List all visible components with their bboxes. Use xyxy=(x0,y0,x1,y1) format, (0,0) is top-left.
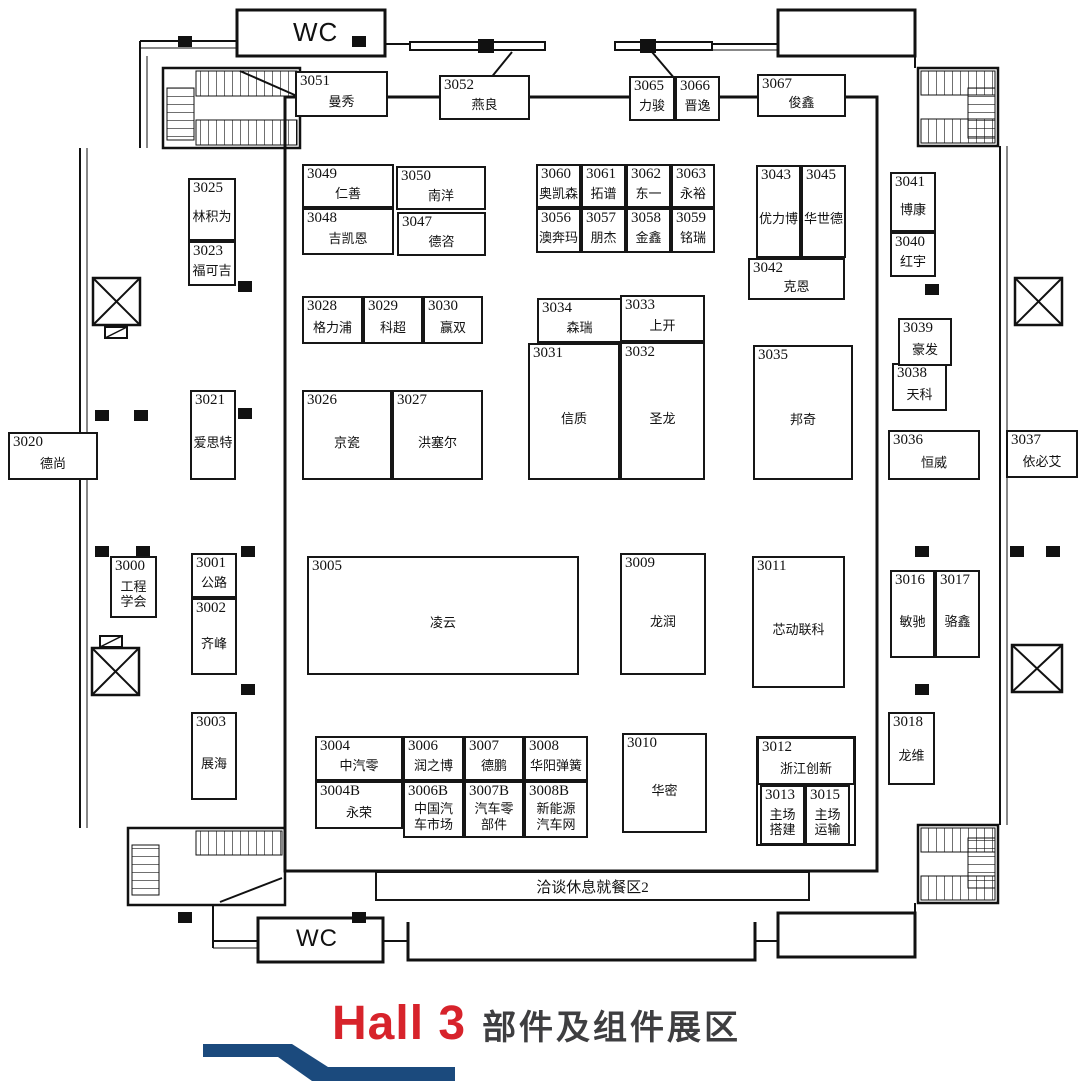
booth-number: 3037 xyxy=(1008,432,1076,449)
booth-number: 3006 xyxy=(405,738,462,755)
booth-exhibitor-name: 金鑫 xyxy=(628,227,669,251)
booth-3042: 3042克恩 xyxy=(748,258,845,300)
booth-exhibitor-name: 永荣 xyxy=(317,800,401,827)
booth-exhibitor-name: 朋杰 xyxy=(583,227,624,251)
booth-3066: 3066晋逸 xyxy=(675,76,720,121)
booth-3060: 3060奥凯森 xyxy=(536,164,581,208)
booth-exhibitor-name: 东一 xyxy=(628,183,669,206)
booth-exhibitor-name: 汽车零 部件 xyxy=(466,800,522,836)
booth-exhibitor-name: 展海 xyxy=(193,731,235,798)
booth-3017: 3017骆鑫 xyxy=(935,570,980,658)
booth-3005: 3005凌云 xyxy=(307,556,579,675)
booth-exhibitor-name: 克恩 xyxy=(750,277,843,298)
booth-number: 3038 xyxy=(894,365,945,382)
booth-exhibitor-name: 骆鑫 xyxy=(937,589,978,656)
booth-3000: 3000工程 学会 xyxy=(110,556,157,618)
booth-3035: 3035邦奇 xyxy=(753,345,853,480)
wc-label-bottom: WC xyxy=(296,925,338,953)
booth-exhibitor-name: 洪塞尔 xyxy=(394,409,481,478)
booth-number: 3034 xyxy=(539,300,620,317)
booth-3031: 3031信质 xyxy=(528,343,620,480)
booth-number: 3033 xyxy=(622,297,703,314)
booth-exhibitor-name: 赢双 xyxy=(425,315,481,342)
booth-exhibitor-name: 德鹏 xyxy=(466,755,522,779)
booth-3008B: 3008B新能源 汽车网 xyxy=(524,781,588,838)
booth-3006B: 3006B中国汽 车市场 xyxy=(403,781,464,838)
booth-number: 3058 xyxy=(628,210,669,227)
booth-number: 3008 xyxy=(526,738,586,755)
booth-number: 3010 xyxy=(624,735,705,752)
booth-3052: 3052燕良 xyxy=(439,75,530,120)
booth-number: 3063 xyxy=(673,166,713,183)
booth-exhibitor-name: 公路 xyxy=(193,572,235,596)
booth-3001: 3001公路 xyxy=(191,553,237,598)
booth-3023: 3023福可吉 xyxy=(188,241,236,286)
booth-exhibitor-name: 森瑞 xyxy=(539,317,620,341)
booth-3040: 3040红宇 xyxy=(890,232,936,277)
booth-exhibitor-name: 福可吉 xyxy=(190,260,234,284)
booth-exhibitor-name: 俊鑫 xyxy=(759,93,844,115)
hall-title: Hall 3 部件及组件展区 xyxy=(332,996,741,1051)
booth-exhibitor-name: 龙润 xyxy=(622,572,704,673)
booth-number: 3067 xyxy=(759,76,844,93)
booth-3018: 3018龙维 xyxy=(888,712,935,785)
booth-number: 3017 xyxy=(937,572,978,589)
booth-exhibitor-name: 齐峰 xyxy=(193,617,235,673)
booth-3056: 3056澳奔玛 xyxy=(536,208,581,253)
booth-number: 3043 xyxy=(758,167,799,184)
booth-number: 3045 xyxy=(803,167,844,184)
booth-exhibitor-name: 科超 xyxy=(365,315,421,342)
booth-exhibitor-name: 铭瑞 xyxy=(673,227,713,251)
booth-exhibitor-name: 仁善 xyxy=(304,183,392,206)
booth-number: 3015 xyxy=(807,787,848,804)
booth-exhibitor-name: 奥凯森 xyxy=(538,183,579,206)
hall-title-zh: 部件及组件展区 xyxy=(482,1000,741,1049)
booth-number: 3008B xyxy=(526,783,586,800)
booth-number: 3059 xyxy=(673,210,713,227)
booth-exhibitor-name: 邦奇 xyxy=(755,364,851,478)
booth-number: 3004 xyxy=(317,738,401,755)
booth-number: 3004B xyxy=(317,783,401,800)
booth-3007B: 3007B汽车零 部件 xyxy=(464,781,524,838)
booth-exhibitor-name: 澳奔玛 xyxy=(538,227,579,251)
booth-exhibitor-name: 华密 xyxy=(624,752,705,831)
hall-title-en: Hall 3 xyxy=(332,996,466,1051)
booth-exhibitor-name: 永裕 xyxy=(673,183,713,206)
booth-exhibitor-name: 主场 搭建 xyxy=(762,804,803,843)
booth-number: 3032 xyxy=(622,344,703,361)
booth-number: 3052 xyxy=(441,77,528,94)
booth-exhibitor-name: 中国汽 车市场 xyxy=(405,800,462,836)
booth-exhibitor-name: 德咨 xyxy=(399,231,484,254)
booth-number: 3023 xyxy=(190,243,234,260)
booth-number: 3061 xyxy=(583,166,624,183)
booth-3008: 3008华阳弹簧 xyxy=(524,736,588,781)
booth-exhibitor-name: 芯动联科 xyxy=(754,575,843,686)
booth-exhibitor-name: 凌云 xyxy=(309,575,577,673)
booth-number: 3013 xyxy=(762,787,803,804)
booth-layer: 3051曼秀3052燕良3065力骏3066晋逸3067俊鑫3049仁善3050… xyxy=(0,0,1080,1089)
booth-exhibitor-name: 华阳弹簧 xyxy=(526,755,586,779)
booth-number: 3039 xyxy=(900,320,950,337)
booth-exhibitor-name: 圣龙 xyxy=(622,361,703,478)
booth-exhibitor-name: 信质 xyxy=(530,362,618,478)
booth-exhibitor-name: 天科 xyxy=(894,382,945,409)
booth-exhibitor-name: 曼秀 xyxy=(297,90,386,115)
booth-3006: 3006润之博 xyxy=(403,736,464,781)
exhibition-floorplan: 3051曼秀3052燕良3065力骏3066晋逸3067俊鑫3049仁善3050… xyxy=(0,0,1080,1089)
booth-exhibitor-name: 力骏 xyxy=(631,95,673,119)
booth-3010: 3010华密 xyxy=(622,733,707,833)
booth-3015: 3015主场 运输 xyxy=(805,785,850,845)
booth-number: 3041 xyxy=(892,174,934,191)
booth-number: 3035 xyxy=(755,347,851,364)
booth-number: 3047 xyxy=(399,214,484,231)
booth-exhibitor-name: 润之博 xyxy=(405,755,462,779)
booth-3002: 3002齐峰 xyxy=(191,598,237,675)
booth-3033: 3033上开 xyxy=(620,295,705,342)
booth-exhibitor-name: 华世德 xyxy=(803,184,844,256)
booth-exhibitor-name: 豪发 xyxy=(900,337,950,364)
booth-number: 3042 xyxy=(750,260,843,277)
booth-3063: 3063永裕 xyxy=(671,164,715,208)
booth-number: 3007B xyxy=(466,783,522,800)
wc-label-top: WC xyxy=(293,17,338,48)
booth-number: 3049 xyxy=(304,166,392,183)
booth-number: 3005 xyxy=(309,558,577,575)
booth-number: 3020 xyxy=(10,434,96,451)
booth-number: 3031 xyxy=(530,345,618,362)
booth-exhibitor-name: 博康 xyxy=(892,191,934,230)
booth-number: 3012 xyxy=(759,739,853,756)
booth-number: 3036 xyxy=(890,432,978,449)
booth-number: 3026 xyxy=(304,392,390,409)
booth-3062: 3062东一 xyxy=(626,164,671,208)
booth-3065: 3065力骏 xyxy=(629,76,675,121)
booth-3021: 3021爱思特 xyxy=(190,390,236,480)
dining-rest-area: 洽谈休息就餐区2 xyxy=(375,871,810,901)
booth-number: 3050 xyxy=(398,168,484,185)
booth-3029: 3029科超 xyxy=(363,296,423,344)
booth-number: 3056 xyxy=(538,210,579,227)
booth-3050: 3050南洋 xyxy=(396,166,486,210)
booth-3041: 3041博康 xyxy=(890,172,936,232)
booth-exhibitor-name: 敏驰 xyxy=(892,589,933,656)
booth-3051: 3051曼秀 xyxy=(295,71,388,117)
booth-number: 3066 xyxy=(677,78,718,95)
booth-exhibitor-name: 新能源 汽车网 xyxy=(526,800,586,836)
booth-3027: 3027洪塞尔 xyxy=(392,390,483,480)
booth-3016: 3016敏驰 xyxy=(890,570,935,658)
booth-3009: 3009龙润 xyxy=(620,553,706,675)
booth-3057: 3057朋杰 xyxy=(581,208,626,253)
booth-exhibitor-name: 优力博 xyxy=(758,184,799,256)
booth-exhibitor-name: 恒威 xyxy=(890,449,978,478)
booth-number: 3000 xyxy=(112,558,155,575)
booth-exhibitor-name: 中汽零 xyxy=(317,755,401,779)
booth-3020: 3020德尚 xyxy=(8,432,98,480)
booth-exhibitor-name: 爱思特 xyxy=(192,409,234,478)
booth-exhibitor-name: 晋逸 xyxy=(677,95,718,119)
booth-3061: 3061拓谱 xyxy=(581,164,626,208)
booth-3045: 3045华世德 xyxy=(801,165,846,258)
booth-number: 3051 xyxy=(297,73,386,90)
booth-3059: 3059铭瑞 xyxy=(671,208,715,253)
booth-exhibitor-name: 依必艾 xyxy=(1008,449,1076,476)
booth-3036: 3036恒威 xyxy=(888,430,980,480)
booth-3007: 3007德鹏 xyxy=(464,736,524,781)
booth-number: 3048 xyxy=(304,210,392,227)
booth-number: 3016 xyxy=(892,572,933,589)
booth-exhibitor-name: 吉凯恩 xyxy=(304,227,392,253)
booth-number: 3006B xyxy=(405,783,462,800)
booth-3067: 3067俊鑫 xyxy=(757,74,846,117)
booth-exhibitor-name: 燕良 xyxy=(441,94,528,118)
booth-3032: 3032圣龙 xyxy=(620,342,705,480)
booth-3004: 3004中汽零 xyxy=(315,736,403,781)
booth-number: 3011 xyxy=(754,558,843,575)
booth-number: 3040 xyxy=(892,234,934,251)
booth-exhibitor-name: 龙维 xyxy=(890,731,933,783)
booth-3038: 3038天科 xyxy=(892,363,947,411)
booth-3011: 3011芯动联科 xyxy=(752,556,845,688)
booth-3012: 3012浙江创新 xyxy=(757,737,855,785)
booth-exhibitor-name: 林积为 xyxy=(190,197,234,239)
booth-3034: 3034森瑞 xyxy=(537,298,622,343)
booth-exhibitor-name: 拓谱 xyxy=(583,183,624,206)
booth-3026: 3026京瓷 xyxy=(302,390,392,480)
booth-number: 3002 xyxy=(193,600,235,617)
booth-number: 3021 xyxy=(192,392,234,409)
booth-number: 3029 xyxy=(365,298,421,315)
booth-3028: 3028格力浦 xyxy=(302,296,363,344)
booth-number: 3060 xyxy=(538,166,579,183)
booth-3048: 3048吉凯恩 xyxy=(302,208,394,255)
booth-number: 3009 xyxy=(622,555,704,572)
booth-exhibitor-name: 德尚 xyxy=(10,451,96,478)
booth-3013: 3013主场 搭建 xyxy=(760,785,805,845)
booth-number: 3018 xyxy=(890,714,933,731)
booth-number: 3057 xyxy=(583,210,624,227)
booth-3003: 3003展海 xyxy=(191,712,237,800)
booth-number: 3062 xyxy=(628,166,669,183)
booth-exhibitor-name: 浙江创新 xyxy=(759,756,853,783)
booth-exhibitor-name: 上开 xyxy=(622,314,703,340)
booth-3049: 3049仁善 xyxy=(302,164,394,208)
booth-3030: 3030赢双 xyxy=(423,296,483,344)
booth-number: 3028 xyxy=(304,298,361,315)
booth-exhibitor-name: 格力浦 xyxy=(304,315,361,342)
booth-number: 3065 xyxy=(631,78,673,95)
booth-exhibitor-name: 主场 运输 xyxy=(807,804,848,843)
booth-number: 3003 xyxy=(193,714,235,731)
booth-number: 3007 xyxy=(466,738,522,755)
booth-3047: 3047德咨 xyxy=(397,212,486,256)
booth-number: 3030 xyxy=(425,298,481,315)
booth-number: 3001 xyxy=(193,555,235,572)
booth-number: 3027 xyxy=(394,392,481,409)
booth-exhibitor-name: 红宇 xyxy=(892,251,934,275)
booth-number: 3025 xyxy=(190,180,234,197)
booth-3039: 3039豪发 xyxy=(898,318,952,366)
booth-3004B: 3004B永荣 xyxy=(315,781,403,829)
booth-3025: 3025林积为 xyxy=(188,178,236,241)
booth-3043: 3043优力博 xyxy=(756,165,801,258)
booth-3037: 3037依必艾 xyxy=(1006,430,1078,478)
booth-exhibitor-name: 工程 学会 xyxy=(112,575,155,616)
booth-exhibitor-name: 南洋 xyxy=(398,185,484,208)
booth-3058: 3058金鑫 xyxy=(626,208,671,253)
booth-exhibitor-name: 京瓷 xyxy=(304,409,390,478)
